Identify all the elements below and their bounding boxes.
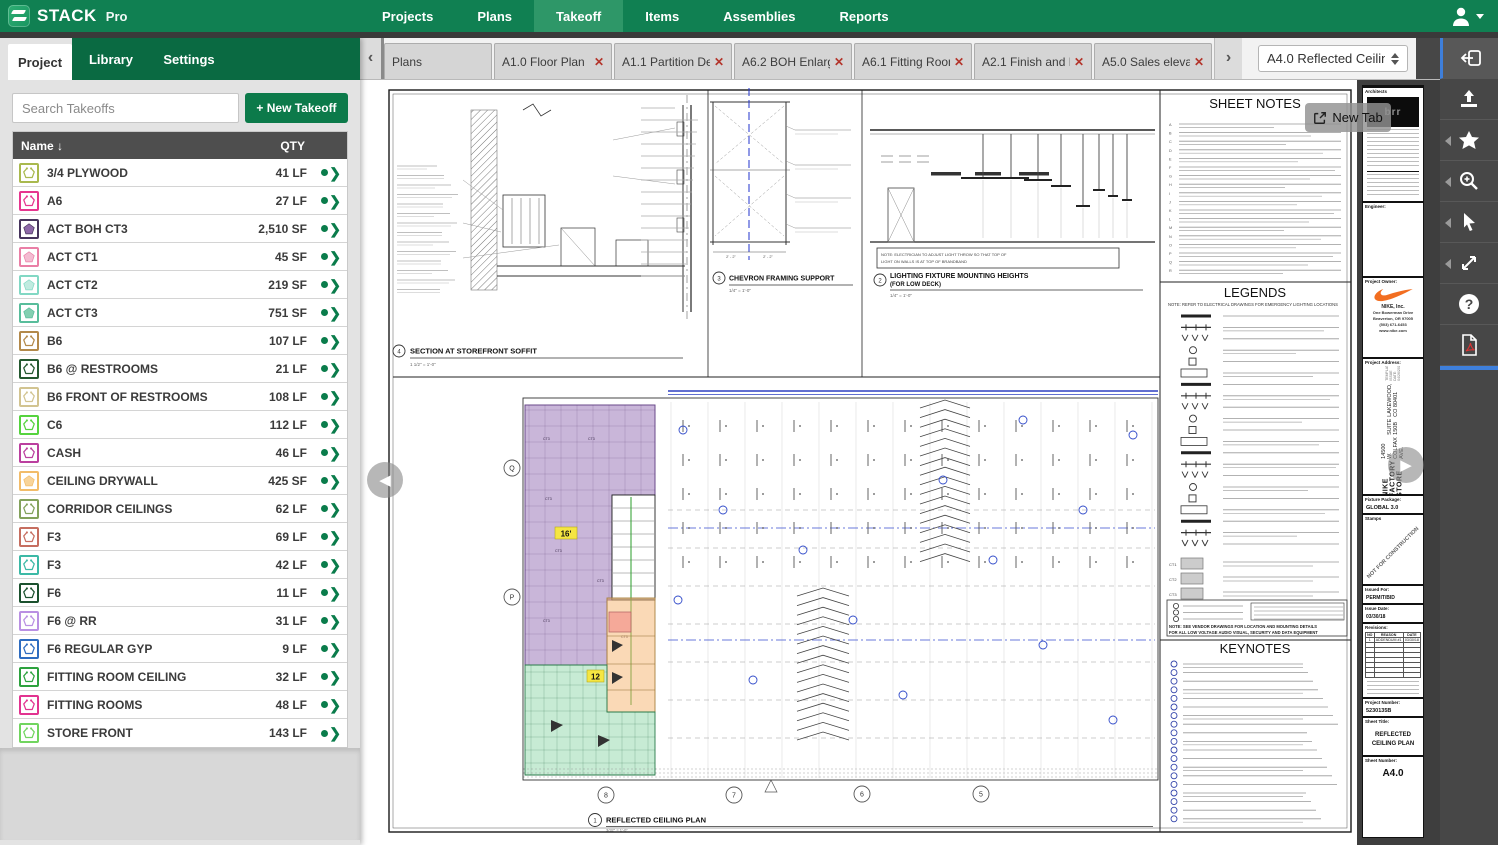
svg-text:R: R	[1169, 269, 1172, 273]
takeoff-goto-button[interactable]: ❯	[315, 502, 341, 516]
takeoff-row[interactable]: ACT CT145 SF❯	[13, 243, 347, 271]
takeoff-table: Name ↓ QTY 3/4 PLYWOOD41 LF❯A627 LF❯ACT …	[12, 131, 348, 748]
svg-text:C: C	[1169, 140, 1172, 144]
takeoff-goto-button[interactable]: ❯	[315, 670, 341, 684]
revisions-label: Revisions:	[1363, 622, 1423, 631]
svg-text:G: G	[1169, 175, 1172, 179]
sheet-number-label: Sheet Number:	[1363, 755, 1423, 764]
sheet-title-label: Sheet Title:	[1363, 716, 1423, 725]
sidebar: ProjectLibrarySettings + New Takeoff Nam…	[0, 38, 360, 845]
takeoff-row[interactable]: FITTING ROOM CEILING32 LF❯	[13, 663, 347, 691]
help-icon: ?	[1459, 294, 1479, 314]
svg-text:Q: Q	[1169, 261, 1172, 265]
zoom-in-icon	[1458, 170, 1480, 192]
upload-icon	[1458, 89, 1480, 109]
svg-text:CT2: CT2	[1169, 577, 1177, 582]
brand-name: STACK	[37, 6, 97, 26]
drawing-canvas[interactable]: 4 SECTION AT STOREFRONT SOFFIT 1 1/2" = …	[360, 80, 1440, 845]
svg-text:CT3: CT3	[543, 619, 550, 623]
document-tab-label: A1.1 Partition Det	[622, 55, 710, 69]
right-toolbar: ?	[1440, 38, 1498, 845]
takeoff-goto-button[interactable]: ❯	[315, 446, 341, 460]
engineer-label: Engineer:	[1363, 201, 1423, 210]
area-takeoff-icon	[19, 275, 39, 295]
new-takeoff-button[interactable]: + New Takeoff	[245, 93, 348, 123]
takeoff-row[interactable]: A627 LF❯	[13, 187, 347, 215]
close-tab-icon[interactable]	[594, 55, 604, 69]
brand[interactable]: STACK Pro	[0, 5, 360, 27]
nav-item-projects[interactable]: Projects	[360, 0, 455, 32]
close-tab-icon[interactable]	[1074, 55, 1084, 69]
pan-left-button[interactable]	[367, 462, 403, 498]
sidebar-tab-settings[interactable]: Settings	[158, 38, 220, 80]
nav-item-reports[interactable]: Reports	[818, 0, 911, 32]
linear-takeoff-icon	[19, 359, 39, 379]
nav-item-assemblies[interactable]: Assemblies	[701, 0, 817, 32]
document-tab-bar: PlansA1.0 Floor PlanA1.1 Partition DetA6…	[360, 38, 1440, 80]
takeoff-qty: 425 SF	[268, 474, 307, 488]
sheet-number-value: A4.0	[1363, 764, 1423, 783]
svg-text:SHEET NOTES: SHEET NOTES	[1209, 96, 1301, 111]
toolbar-blue-divider	[1440, 366, 1498, 370]
takeoff-goto-button[interactable]: ❯	[315, 334, 341, 348]
new-tab-overlay-button[interactable]: New Tab	[1305, 103, 1391, 132]
svg-text:CT3: CT3	[588, 437, 595, 441]
svg-text:8: 8	[604, 793, 608, 800]
takeoff-goto-button[interactable]: ❯	[315, 166, 341, 180]
qty-column-header[interactable]: QTY	[280, 139, 305, 153]
takeoff-qty: 107 LF	[269, 334, 307, 348]
document-tab[interactable]: Plans	[384, 43, 492, 79]
takeoff-qty: 41 LF	[276, 166, 307, 180]
linear-takeoff-icon	[19, 555, 39, 575]
svg-text:FOR ALL LOW VOLTAGE AUDIO VISU: FOR ALL LOW VOLTAGE AUDIO VISUAL, SECURI…	[1169, 630, 1318, 635]
takeoff-name: FITTING ROOMS	[47, 698, 142, 712]
svg-text:6: 6	[860, 792, 864, 799]
takeoff-goto-button[interactable]: ❯	[315, 586, 341, 600]
document-tab[interactable]: A6.2 BOH Enlarge	[734, 43, 852, 79]
svg-text:2' - 2": 2' - 2"	[763, 255, 773, 259]
tabs-scroll-left-button[interactable]	[360, 37, 384, 79]
takeoff-row[interactable]: B6107 LF❯	[13, 327, 347, 355]
project-owner-label: Project Owner:	[1363, 276, 1423, 285]
flyout-caret-icon	[1445, 177, 1451, 187]
area-takeoff-icon	[19, 219, 39, 239]
name-column-header[interactable]: Name ↓	[21, 139, 63, 153]
takeoff-name: F3	[47, 530, 61, 544]
fixture-package-value: GLOBAL 3.0	[1363, 503, 1423, 513]
takeoff-row[interactable]: F369 LF❯	[13, 523, 347, 551]
nav-item-items[interactable]: Items	[623, 0, 701, 32]
linear-takeoff-icon	[19, 723, 39, 743]
takeoff-qty: 219 SF	[268, 278, 307, 292]
sheet-drawing: 4 SECTION AT STOREFRONT SOFFIT 1 1/2" = …	[383, 80, 1357, 845]
svg-text:CT3: CT3	[543, 437, 550, 441]
svg-text:1/4" = 1'-0": 1/4" = 1'-0"	[890, 293, 912, 298]
takeoff-name: A6	[47, 194, 62, 208]
stack-logo-icon	[8, 5, 30, 27]
select-tool-button[interactable]	[1440, 202, 1498, 243]
fixture-package-label: Fixture Package:	[1363, 494, 1423, 503]
sheet-select-dropdown[interactable]: A4.0 Reflected Ceiling	[1258, 45, 1408, 72]
takeoff-name: ACT CT1	[47, 250, 98, 264]
top-nav-items: ProjectsPlansTakeoffItemsAssembliesRepor…	[360, 0, 911, 32]
svg-text:J: J	[1169, 200, 1171, 204]
document-tab-label: Plans	[392, 55, 484, 69]
linear-takeoff-icon	[19, 639, 39, 659]
takeoff-name: C6	[47, 418, 62, 432]
svg-text:(FOR LOW DECK): (FOR LOW DECK)	[890, 282, 941, 288]
takeoff-qty: 11 LF	[276, 586, 307, 600]
takeoff-name: ACT CT2	[47, 278, 98, 292]
select-updown-icon	[1391, 53, 1399, 65]
svg-text:H: H	[1169, 183, 1172, 187]
takeoff-row[interactable]: CORRIDOR CEILINGS62 LF❯	[13, 495, 347, 523]
takeoff-name: FITTING ROOM CEILING	[47, 670, 186, 684]
takeoff-qty: 108 LF	[269, 390, 307, 404]
close-tab-icon[interactable]	[1194, 55, 1204, 69]
document-tab[interactable]: A5.0 Sales elevati	[1094, 43, 1212, 79]
linear-takeoff-icon	[19, 583, 39, 603]
takeoff-qty: 48 LF	[276, 698, 307, 712]
svg-text:NOTE: SEE VENDOR DRAWINGS FOR: NOTE: SEE VENDOR DRAWINGS FOR LOCATION A…	[1169, 624, 1317, 629]
takeoff-row[interactable]: 3/4 PLYWOOD41 LF❯	[13, 159, 347, 187]
svg-text:O: O	[1169, 243, 1172, 247]
user-icon	[1450, 6, 1472, 26]
svg-text:P: P	[510, 595, 515, 602]
takeoff-qty: 46 LF	[276, 446, 307, 460]
svg-text:CT3: CT3	[555, 549, 562, 553]
svg-text:D: D	[1169, 149, 1172, 153]
export-upload-button[interactable]	[1440, 79, 1498, 120]
svg-text:REFLECTED CEILING PLAN: REFLECTED CEILING PLAN	[606, 816, 706, 825]
takeoff-goto-button[interactable]: ❯	[315, 250, 341, 264]
svg-text:M: M	[1169, 226, 1172, 230]
svg-text:CHEVRON FRAMING SUPPORT: CHEVRON FRAMING SUPPORT	[729, 276, 835, 283]
sheet-title-value: REFLECTED CEILING PLAN	[1363, 725, 1423, 755]
document-tab-label: A5.0 Sales elevati	[1102, 55, 1190, 69]
svg-text:Q: Q	[509, 466, 515, 473]
document-tab[interactable]: A1.0 Floor Plan	[494, 43, 612, 79]
flyout-caret-icon	[1445, 218, 1451, 228]
height-badge-16: 16'	[555, 527, 577, 539]
sidebar-tabs: ProjectLibrarySettings	[0, 38, 360, 80]
document-tab-label: A1.0 Floor Plan	[502, 55, 590, 69]
takeoff-qty: 42 LF	[276, 558, 307, 572]
svg-text:7: 7	[732, 793, 736, 800]
takeoff-goto-button[interactable]: ❯	[315, 306, 341, 320]
takeoff-qty: 62 LF	[276, 502, 307, 516]
takeoff-row[interactable]: STORE FRONT143 LF❯	[13, 719, 347, 747]
linear-takeoff-icon	[19, 611, 39, 631]
nav-substrip	[0, 32, 1498, 38]
takeoff-name: ACT BOH CT3	[47, 222, 128, 236]
revisions-table: NOREASONDATE1ADDENDUM #103/30/18	[1365, 632, 1421, 678]
project-address-label: Project Address:	[1363, 357, 1423, 366]
pdf-export-button[interactable]	[1440, 325, 1498, 366]
chevron-down-icon	[1476, 14, 1484, 19]
svg-text:3/32" = 1'-0": 3/32" = 1'-0"	[606, 828, 628, 833]
svg-text:1 1/2" = 1'-0": 1 1/2" = 1'-0"	[410, 362, 436, 367]
takeoff-qty: 112 LF	[270, 418, 307, 432]
takeoff-qty: 45 SF	[275, 250, 307, 264]
takeoff-qty: 32 LF	[276, 670, 307, 684]
nike-swoosh-logo	[1372, 288, 1414, 303]
not-for-construction-stamp: NOT FOR CONSTRUCTION	[1366, 526, 1420, 580]
pan-right-button[interactable]	[1388, 447, 1424, 483]
takeoff-name: F6 REGULAR GYP	[47, 642, 152, 656]
project-number-value: 5230135B	[1363, 706, 1423, 716]
pdf-file-icon	[1459, 334, 1479, 356]
top-nav: STACK Pro ProjectsPlansTakeoffItemsAssem…	[0, 0, 1498, 32]
area-takeoff-icon	[19, 303, 39, 323]
takeoff-goto-button[interactable]: ❯	[315, 222, 341, 236]
takeoff-name: B6 FRONT OF RESTROOMS	[47, 390, 208, 404]
area-takeoff-icon	[19, 247, 39, 267]
help-button[interactable]: ?	[1440, 284, 1498, 325]
takeoff-row[interactable]: C6112 LF❯	[13, 411, 347, 439]
takeoff-name: F6	[47, 586, 61, 600]
svg-text:NOTE: ELECTRICIAN TO ADJUST LI: NOTE: ELECTRICIAN TO ADJUST LIGHT THROW …	[881, 252, 1007, 257]
star-icon	[1458, 130, 1480, 150]
takeoff-name: 3/4 PLYWOOD	[47, 166, 128, 180]
takeoff-row[interactable]: B6 FRONT OF RESTROOMS108 LF❯	[13, 383, 347, 411]
takeoff-qty: 27 LF	[276, 194, 307, 208]
sheet-select-value: A4.0 Reflected Ceiling	[1267, 51, 1385, 66]
svg-text:I: I	[1169, 192, 1170, 196]
takeoff-qty: 2,510 SF	[258, 222, 307, 236]
sidebar-tab-project[interactable]: Project	[8, 44, 72, 80]
sidebar-tab-library[interactable]: Library	[84, 38, 138, 80]
linear-takeoff-icon	[19, 387, 39, 407]
linear-takeoff-icon	[19, 527, 39, 547]
takeoff-row[interactable]: F6 REGULAR GYP9 LF❯	[13, 635, 347, 663]
linear-takeoff-icon	[19, 443, 39, 463]
svg-text:CT3: CT3	[545, 497, 552, 501]
takeoff-name: CEILING DRYWALL	[47, 474, 158, 488]
linear-takeoff-icon	[19, 163, 39, 183]
svg-text:CT3: CT3	[1169, 592, 1177, 597]
takeoff-goto-button[interactable]: ❯	[315, 362, 341, 376]
takeoff-qty: 21 LF	[276, 362, 307, 376]
issue-date-value: 03/30/18	[1363, 612, 1423, 622]
takeoff-goto-button[interactable]: ❯	[315, 390, 341, 404]
main-area: PlansA1.0 Floor PlanA1.1 Partition DetA6…	[360, 38, 1440, 845]
takeoff-table-header[interactable]: Name ↓ QTY	[13, 132, 347, 159]
issued-for-label: Issued For:	[1363, 584, 1423, 593]
close-tab-icon[interactable]	[834, 55, 844, 69]
takeoff-goto-button[interactable]: ❯	[315, 418, 341, 432]
svg-text:2' - 2": 2' - 2"	[726, 255, 736, 259]
takeoff-goto-button[interactable]: ❯	[315, 530, 341, 544]
takeoff-name: F3	[47, 558, 61, 572]
svg-text:5: 5	[979, 792, 983, 799]
svg-text:16': 16'	[561, 530, 572, 539]
flyout-caret-icon	[1445, 136, 1451, 146]
stack-pro-app: STACK Pro ProjectsPlansTakeoffItemsAssem…	[0, 0, 1498, 845]
takeoff-goto-button[interactable]: ❯	[315, 278, 341, 292]
takeoff-qty: 143 LF	[269, 726, 307, 740]
takeoff-goto-button[interactable]: ❯	[315, 614, 341, 628]
document-tab[interactable]: A1.1 Partition Det	[614, 43, 732, 79]
svg-text:LEGENDS: LEGENDS	[1224, 285, 1286, 300]
document-tab[interactable]: A2.1 Finish and M	[974, 43, 1092, 79]
close-tab-icon[interactable]	[954, 55, 964, 69]
close-tab-icon[interactable]	[714, 55, 724, 69]
tabs-scroll-right-button[interactable]	[1214, 37, 1242, 79]
takeoff-qty: 751 SF	[268, 306, 307, 320]
architects-label: Architects	[1363, 86, 1423, 95]
collapse-panel-button[interactable]	[1440, 38, 1498, 79]
expand-tool-button[interactable]	[1440, 243, 1498, 284]
svg-text:N: N	[1169, 235, 1172, 239]
brand-suffix: Pro	[106, 9, 128, 24]
svg-text:L: L	[1169, 218, 1171, 222]
svg-text:LIGHT ON WALLS IS AT TOP OF BR: LIGHT ON WALLS IS AT TOP OF BRANDBAND	[881, 259, 967, 264]
height-badge-12: 12	[587, 670, 604, 682]
user-menu[interactable]	[1450, 6, 1484, 26]
nav-item-takeoff[interactable]: Takeoff	[534, 0, 623, 32]
takeoff-row[interactable]: CEILING DRYWALL425 SF❯	[13, 467, 347, 495]
takeoff-goto-button[interactable]: ❯	[315, 474, 341, 488]
document-tab-label: A2.1 Finish and M	[982, 55, 1070, 69]
takeoff-name: ACT CT3	[47, 306, 98, 320]
takeoff-goto-button[interactable]: ❯	[315, 194, 341, 208]
nav-item-plans[interactable]: Plans	[455, 0, 534, 32]
linear-takeoff-icon	[19, 667, 39, 687]
takeoff-row[interactable]: ACT CT3751 SF❯	[13, 299, 347, 327]
takeoff-goto-button[interactable]: ❯	[315, 726, 341, 740]
takeoff-row[interactable]: ACT CT2219 SF❯	[13, 271, 347, 299]
stamps-label: Stamps	[1363, 513, 1423, 522]
zoom-tool-button[interactable]	[1440, 161, 1498, 202]
issue-date-label: Issue Date:	[1363, 603, 1423, 612]
expand-arrows-icon	[1459, 253, 1479, 273]
takeoff-row[interactable]: F611 LF❯	[13, 579, 347, 607]
issued-for-value: PERMIT/BID	[1363, 593, 1423, 603]
takeoff-row[interactable]: CASH46 LF❯	[13, 439, 347, 467]
linear-takeoff-icon	[19, 415, 39, 435]
document-tab-label: A6.2 BOH Enlarge	[742, 55, 830, 69]
takeoff-qty: 31 LF	[276, 614, 307, 628]
svg-text:KEYNOTES: KEYNOTES	[1220, 641, 1291, 656]
takeoff-row[interactable]: ACT BOH CT32,510 SF❯	[13, 215, 347, 243]
linear-takeoff-icon	[19, 695, 39, 715]
favorites-tool-button[interactable]	[1440, 120, 1498, 161]
document-tab-label: A6.1 Fitting Room	[862, 55, 950, 69]
cursor-icon	[1459, 212, 1479, 232]
search-takeoffs-input[interactable]	[12, 93, 239, 123]
linear-takeoff-icon	[19, 331, 39, 351]
linear-takeoff-icon	[19, 499, 39, 519]
takeoff-name: B6 @ RESTROOMS	[47, 362, 158, 376]
takeoff-qty: 69 LF	[276, 530, 307, 544]
project-number-label: Project Number:	[1363, 697, 1423, 706]
takeoff-row[interactable]: F6 @ RR31 LF❯	[13, 607, 347, 635]
svg-text:CT1: CT1	[1169, 562, 1177, 567]
flyout-caret-icon	[1445, 259, 1451, 269]
exit-panel-icon	[1459, 48, 1483, 68]
linear-takeoff-icon	[19, 191, 39, 211]
svg-text:CT3: CT3	[597, 579, 604, 583]
takeoff-goto-button[interactable]: ❯	[315, 698, 341, 712]
takeoff-qty: 9 LF	[282, 642, 307, 656]
tab-bar-filler	[1416, 37, 1440, 79]
takeoff-name: B6	[47, 334, 62, 348]
takeoff-name: STORE FRONT	[47, 726, 133, 740]
takeoff-goto-button[interactable]: ❯	[315, 558, 341, 572]
takeoff-row[interactable]: FITTING ROOMS48 LF❯	[13, 691, 347, 719]
takeoff-row[interactable]: F342 LF❯	[13, 551, 347, 579]
document-tab[interactable]: A6.1 Fitting Room	[854, 43, 972, 79]
takeoff-row[interactable]: B6 @ RESTROOMS21 LF❯	[13, 355, 347, 383]
svg-text:SECTION AT STOREFRONT SOFFIT: SECTION AT STOREFRONT SOFFIT	[410, 347, 537, 356]
takeoff-name: CASH	[47, 446, 81, 460]
svg-text:1/4" = 1'-0": 1/4" = 1'-0"	[729, 288, 751, 293]
takeoff-name: CORRIDOR CEILINGS	[47, 502, 172, 516]
open-new-tab-icon	[1313, 111, 1327, 125]
sidebar-filler	[0, 748, 360, 840]
svg-text:LIGHTING FIXTURE MOUNTING HEIG: LIGHTING FIXTURE MOUNTING HEIGHTS	[890, 273, 1029, 280]
svg-text:12: 12	[591, 673, 600, 682]
area-takeoff-icon	[19, 471, 39, 491]
takeoff-name: F6 @ RR	[47, 614, 97, 628]
takeoff-goto-button[interactable]: ❯	[315, 642, 341, 656]
svg-text:NOTE: REFER TO ELECTRICAL DRA: NOTE: REFER TO ELECTRICAL DRAWINGS FOR E…	[1168, 302, 1338, 307]
